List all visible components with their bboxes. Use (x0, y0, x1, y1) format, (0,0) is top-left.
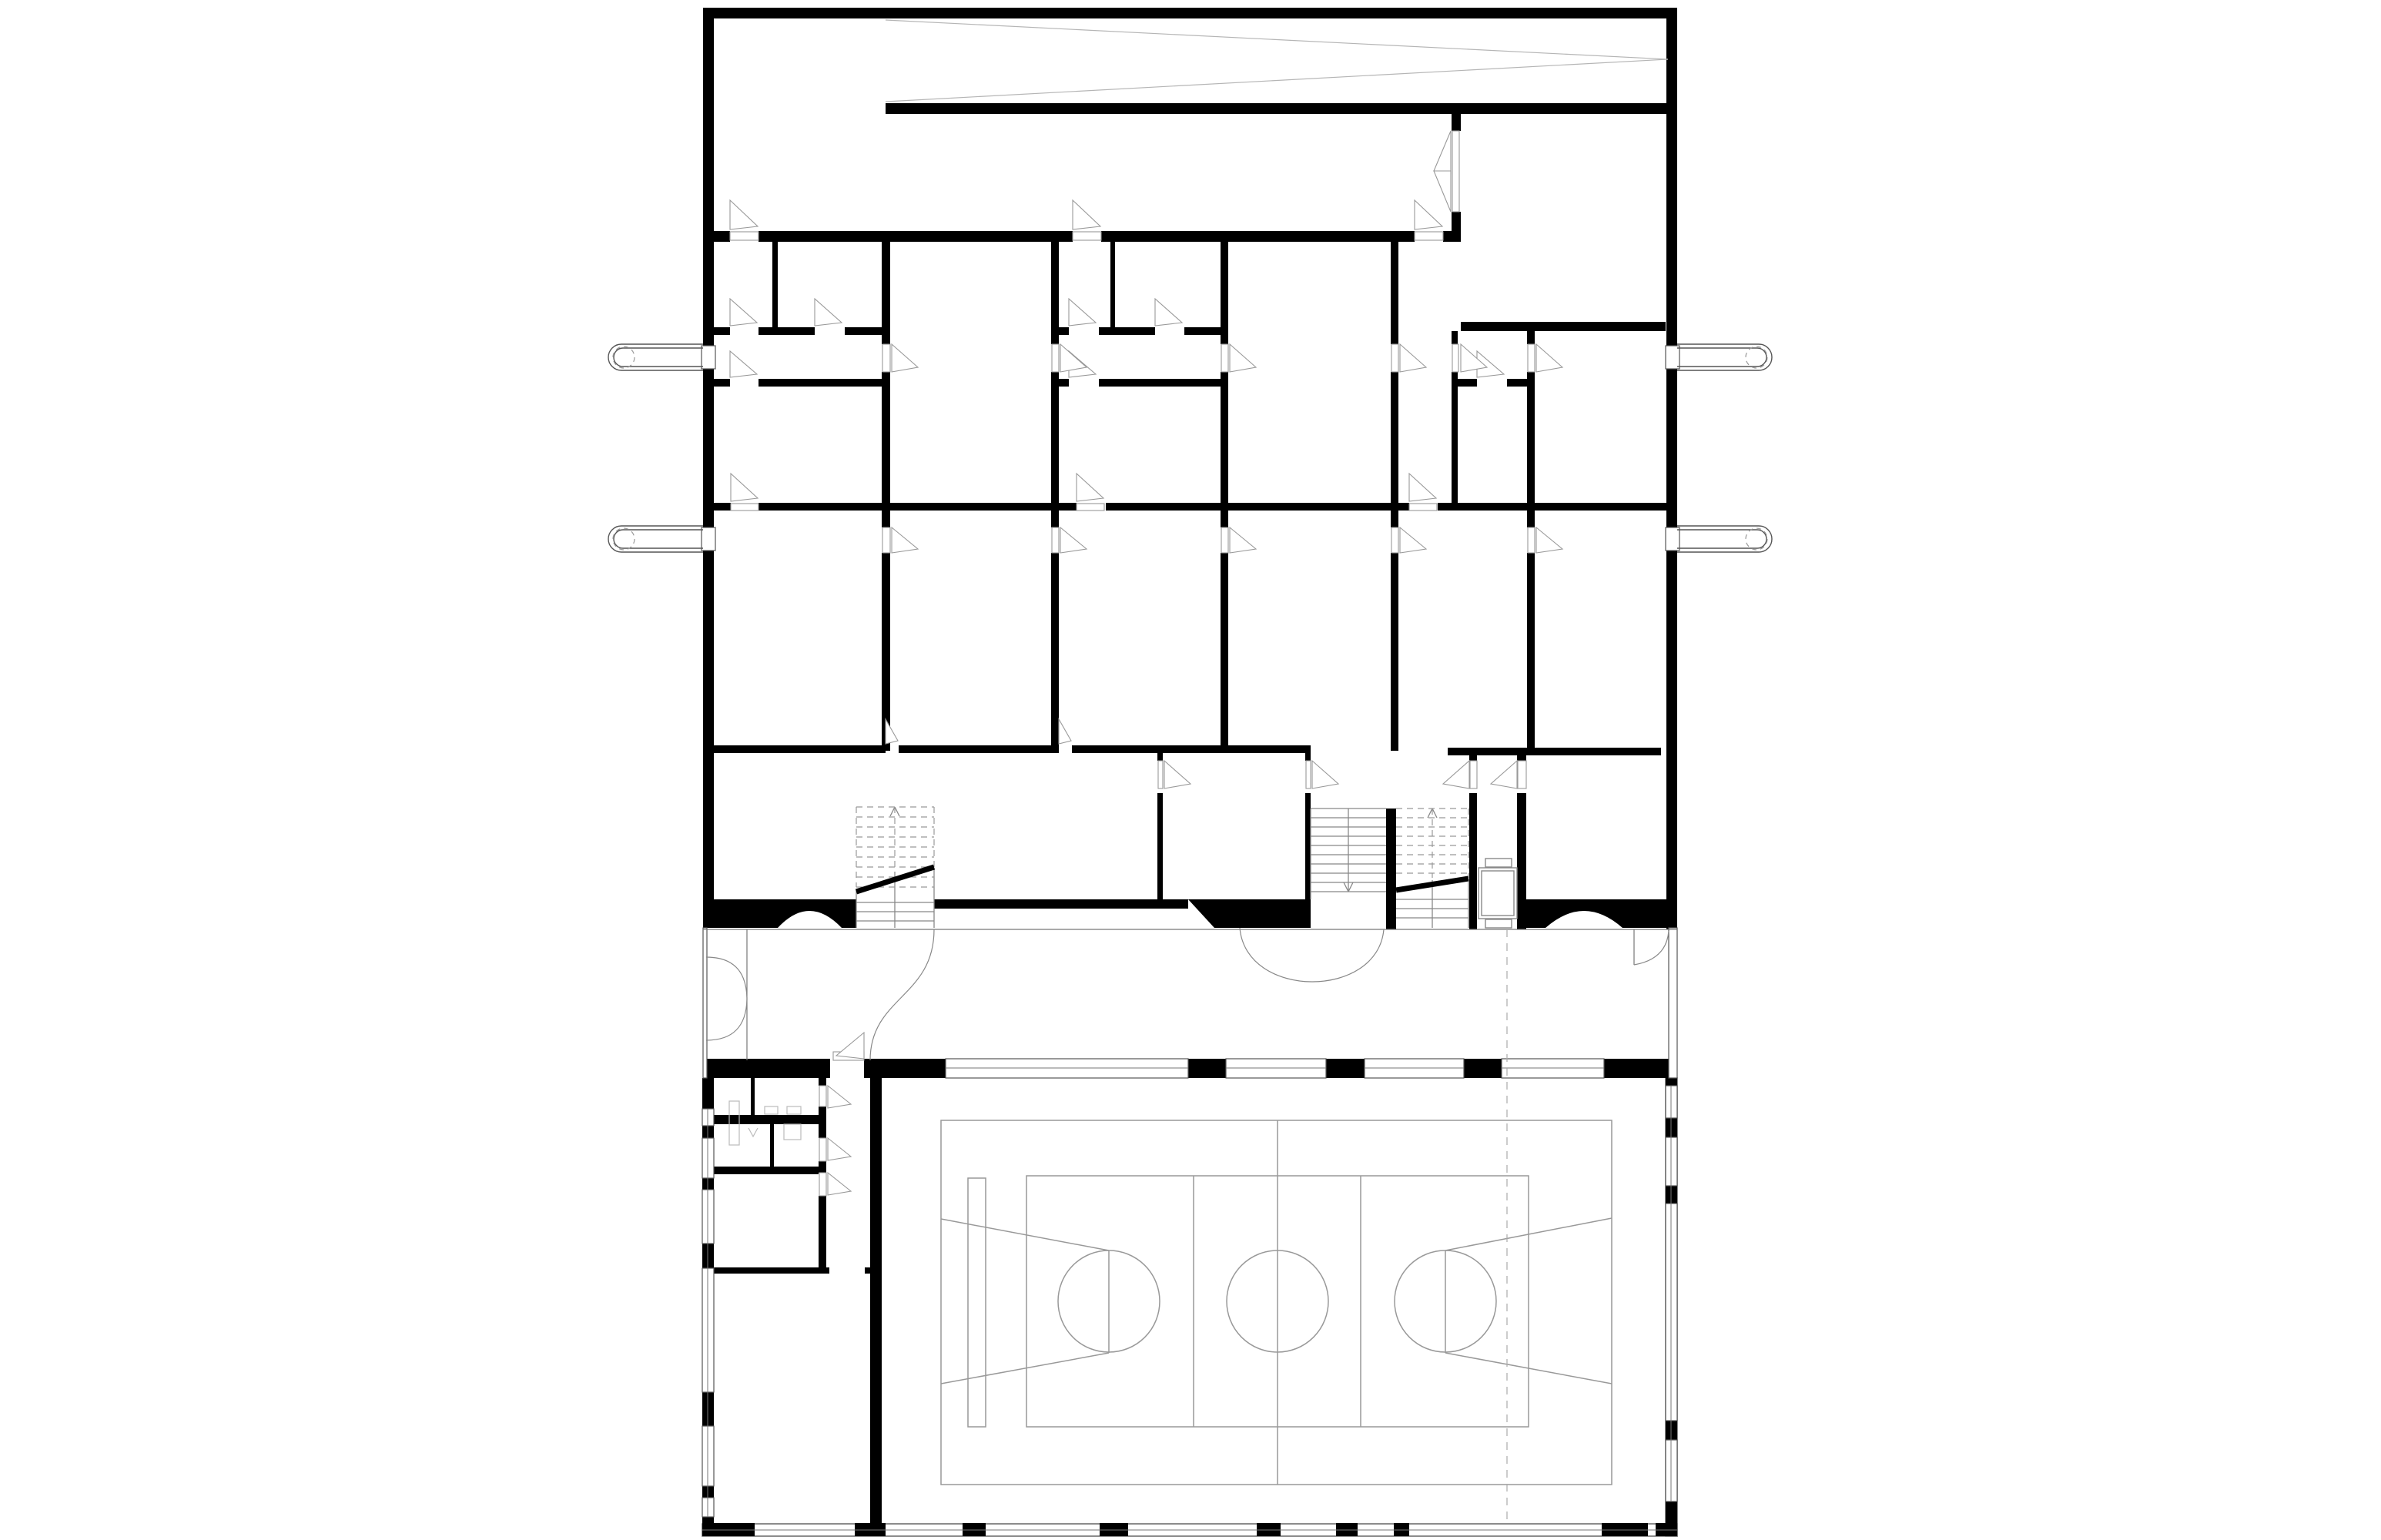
ramp-direction-lines (886, 20, 1668, 102)
elevator (1478, 859, 1517, 928)
court-frames (941, 1120, 1612, 1485)
lobby-curves (706, 928, 1669, 1060)
lobby-lines (703, 929, 1677, 1060)
floor-plan-canvas (0, 0, 2381, 1540)
floor-plan-page (0, 0, 2381, 1540)
door-swings (730, 131, 1562, 1195)
window-midlines (702, 1068, 1677, 1530)
south-window-band (702, 1078, 1677, 1536)
door-leaves (730, 131, 1535, 1196)
walls-layer (702, 8, 1677, 1536)
exterior-ladders (608, 344, 1772, 552)
wall-thickening (1188, 899, 1311, 928)
ladder-dashed-circles (613, 346, 1767, 550)
sanitary-fixture-bowl (748, 1128, 758, 1137)
court-lines (941, 1120, 1612, 1485)
